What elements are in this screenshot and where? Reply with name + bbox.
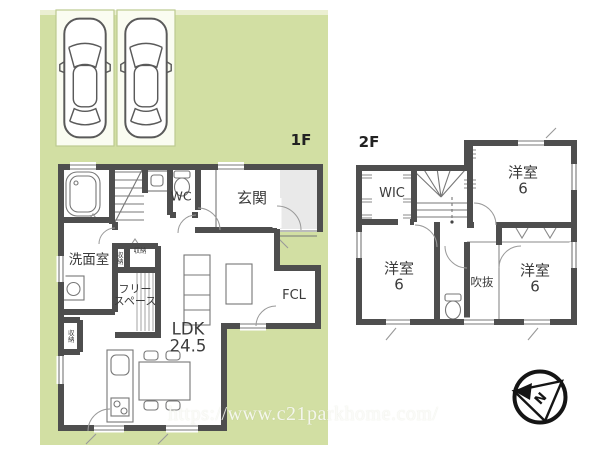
floor2-label: 2F [359,135,380,151]
room-label-wc: WC [170,189,191,202]
room-label-fcl: FCL [282,289,306,303]
floor1-label: 1F [291,133,312,149]
compass-icon: N [514,372,566,423]
room-label-void: 吹抜 [471,276,494,288]
room-label-storage-2: 収納 [134,248,147,255]
room-label-storage-1: 収納 [116,252,123,265]
watermark-url: https://www.c21parkhome.com/ [168,403,438,426]
room-label-free-space: フリー スペース [114,283,157,306]
room-label-wic: WIC [379,187,405,201]
room-label-bedroom-bottom-right: 洋室 6 [520,263,550,295]
room-label-bedroom-left: 洋室 6 [384,261,414,293]
parking-area [56,10,175,146]
room-label-storage-3: 収納 [67,330,74,343]
room-label-ldk: LDK 24.5 [170,322,207,355]
room-label-senmenshitsu: 洗面室 [69,253,110,267]
room-label-genkan: 玄関 [237,191,267,207]
car-icon [121,19,171,138]
floorplan-image: N 1F 2F 玄関 WC 洗面室 収納 収納 収納 フリー スペース LDK … [0,0,600,454]
floorplan-linework: N [0,0,600,454]
floor2-plan [355,128,579,340]
room-label-bedroom-top-right: 洋室 6 [508,165,538,197]
car-icon [60,19,110,138]
